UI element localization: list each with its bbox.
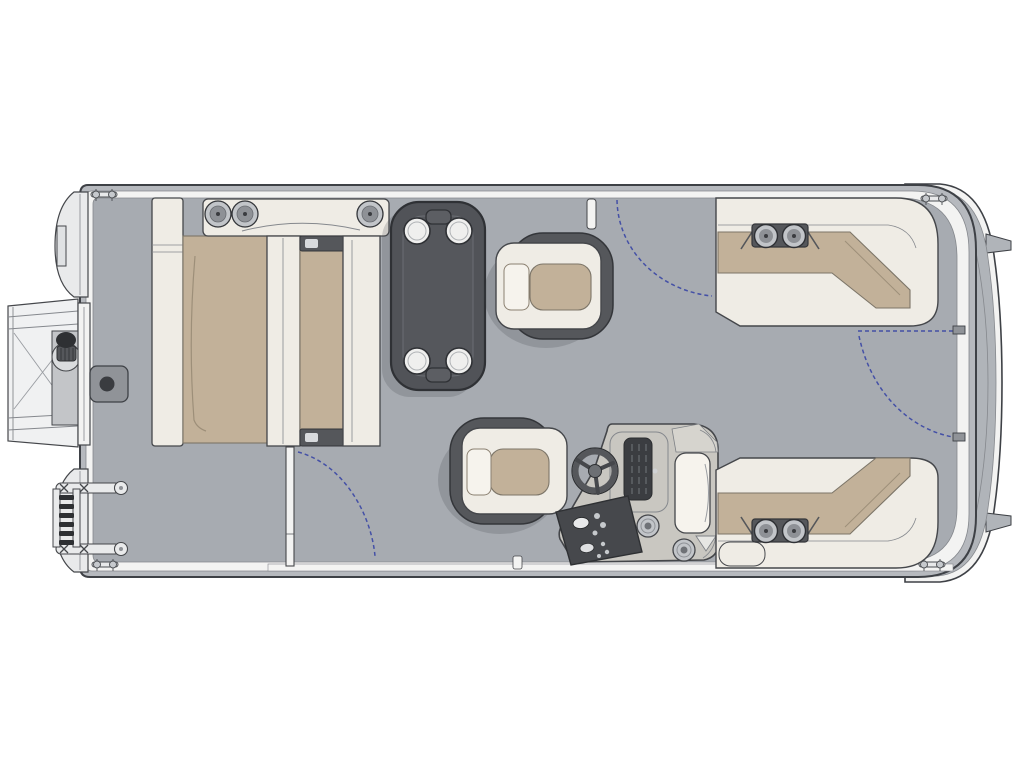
table-cup-holder [404,348,430,374]
cup-holder [357,201,383,227]
speaker-bracket-notch [305,239,318,248]
stern-gate-hinge [953,433,965,441]
bottom-fence-post [513,556,522,569]
bow-lounge-left-cushion [183,236,267,443]
motor-mount-tab [986,513,1011,532]
chair-cushion [530,264,591,310]
switch-knob [597,554,601,558]
speaker-bracket-notch [305,433,318,442]
switch-knob [601,542,605,546]
cup-holder [783,520,806,543]
stern-gate-hinge [953,326,965,334]
storage-box-latch [100,377,115,392]
dash-button [653,469,658,474]
pedestal-table [382,202,485,397]
switch-knob [594,513,600,519]
switch-knob [605,550,609,554]
bow-lounge-front-edge [343,236,380,446]
cup-holder [755,520,778,543]
console-cup-holder [673,539,695,561]
lounge-end-cap [719,542,765,566]
motor-mount-tab [986,234,1011,253]
table-handle [426,210,451,224]
console-cup-holder [637,515,659,537]
nose-bracket [57,226,66,266]
chair-headrest [504,264,529,310]
bow-lounge-center-backrest [267,236,300,446]
switch-knob [600,522,606,528]
switch-knob [593,531,598,536]
top-fence-post [587,199,596,229]
pontoon-floorplan-diagram [0,0,1024,768]
bow-lounge-left-backrest [152,198,183,446]
cup-holder [232,201,258,227]
bow-lounge-center-cushion [300,250,343,432]
instrument-panel [624,438,652,500]
table-handle [426,368,451,382]
floorplan-canvas [0,0,1024,768]
table-cup-holder [404,218,430,244]
chair-cushion [490,449,549,495]
chair-headrest [467,449,491,495]
bottom-side-gate-door [286,447,294,566]
stern-lounge-bottom [716,458,938,568]
cup-holder [205,201,231,227]
cup-holder [755,225,778,248]
companion-captain-chair [484,233,613,348]
stern-lounge-top [716,198,938,326]
cup-holder [783,225,806,248]
